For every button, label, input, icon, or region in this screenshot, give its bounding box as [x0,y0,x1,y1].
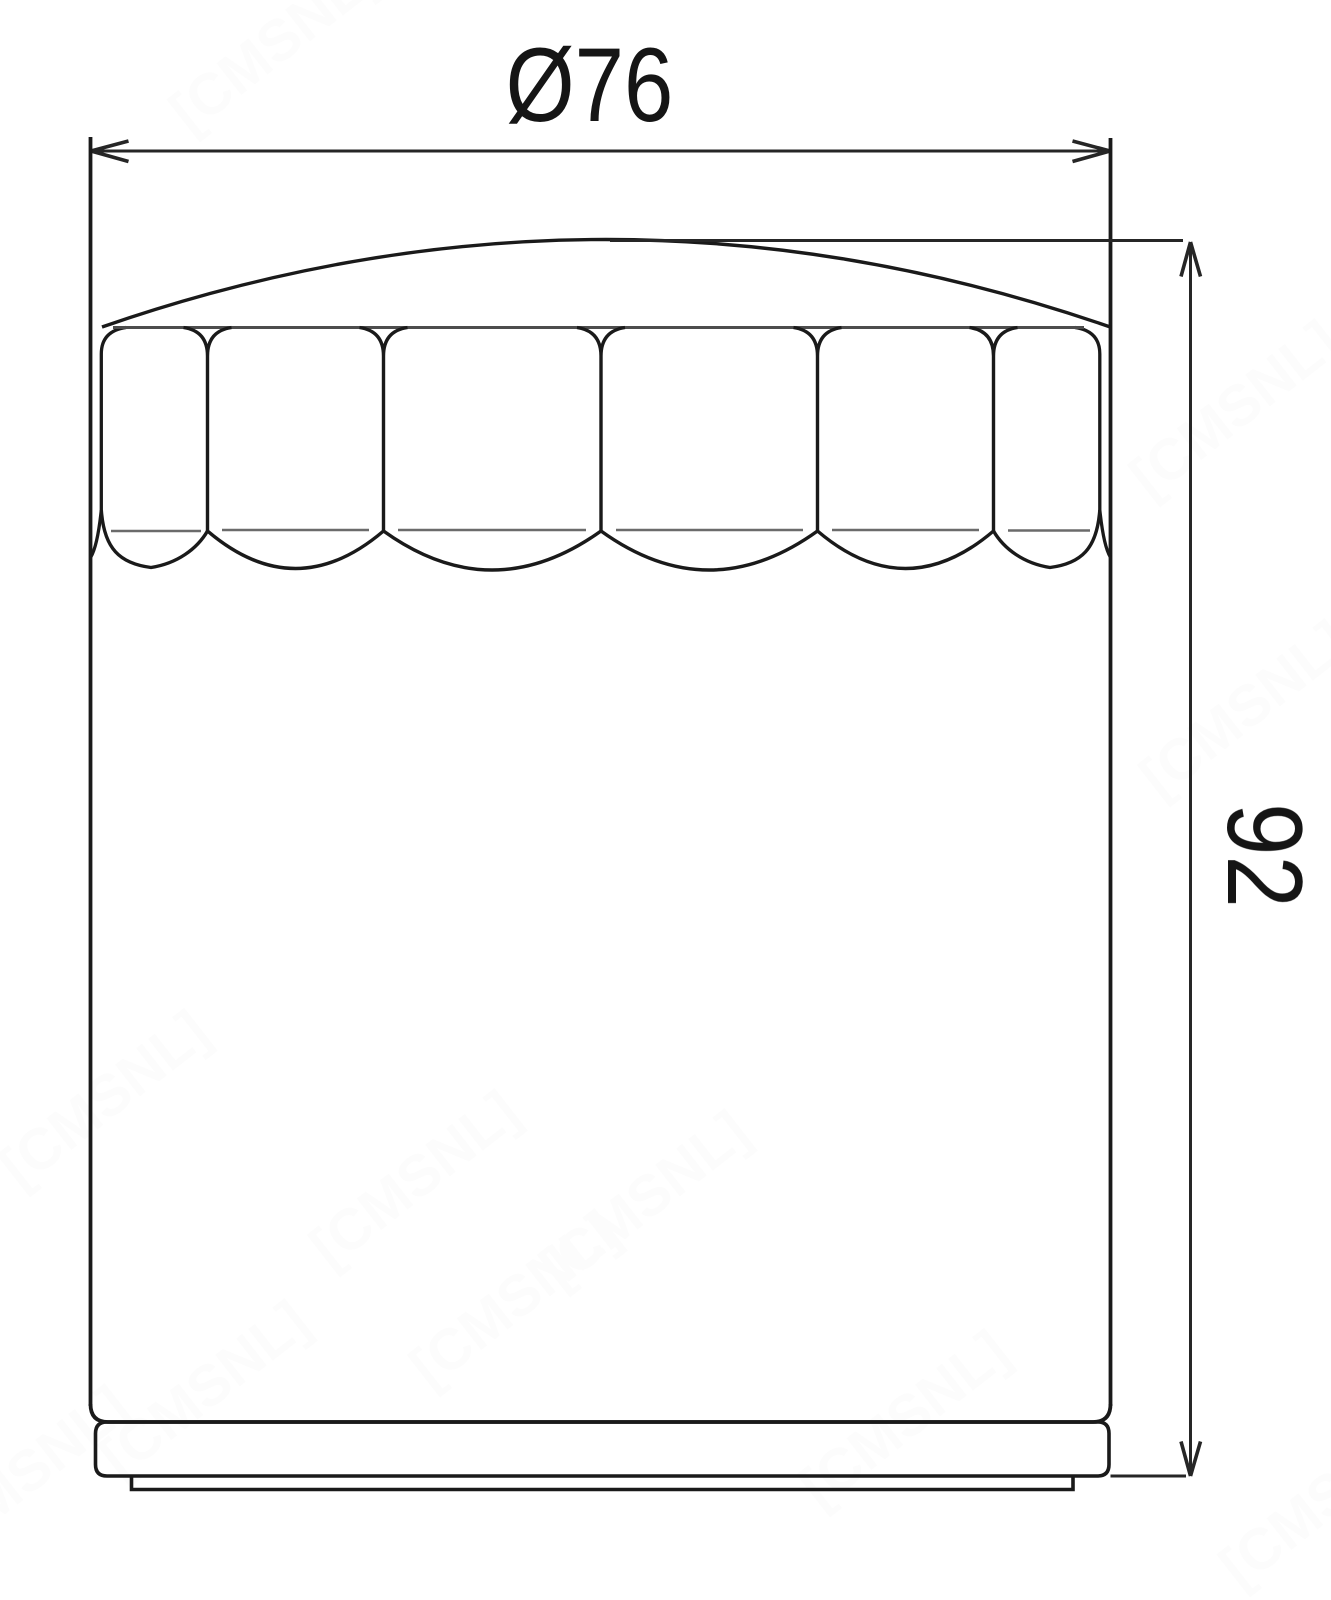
svg-text:92: 92 [1205,803,1324,908]
svg-text:Ø76: Ø76 [506,26,674,144]
